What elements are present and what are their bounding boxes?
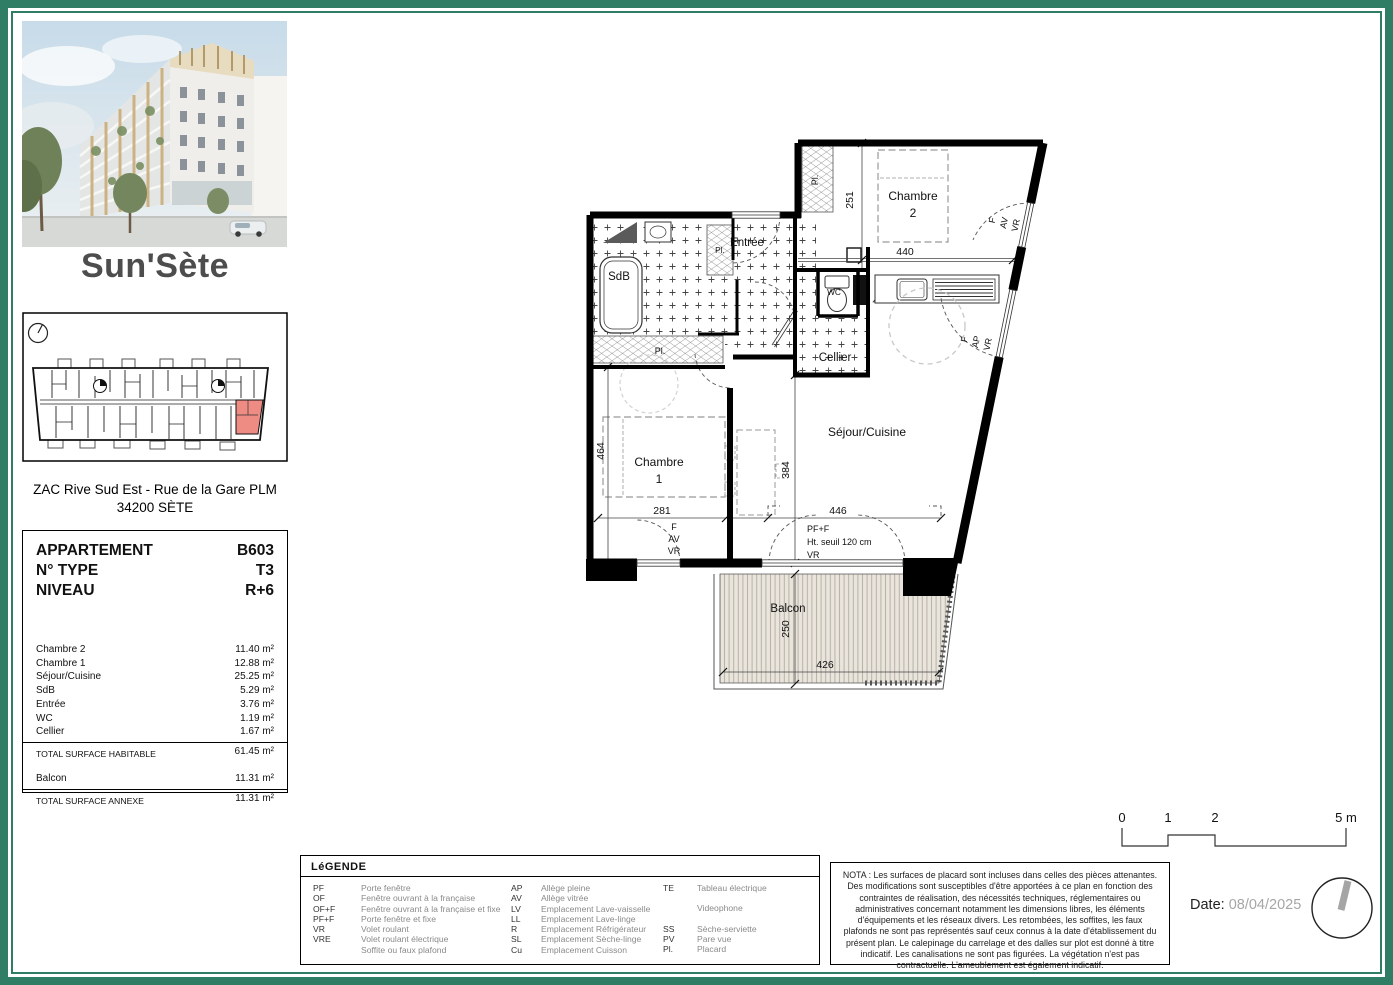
room-label-balcon: Balcon [770, 603, 805, 615]
room-area-row: Entrée3.76 m² [36, 698, 274, 712]
balcony-area-row: Balcon11.31 m² [36, 772, 274, 786]
room-area-row: Chambre 112.88 m² [36, 657, 274, 671]
north-arrow-icon [1308, 874, 1376, 942]
window-label-sejour: F AP VR [958, 332, 994, 352]
room-label-wc: WC [827, 287, 841, 297]
scale-label-5m: 5 m [1335, 810, 1357, 825]
washbasin [645, 222, 671, 242]
svg-text:F: F [987, 216, 998, 224]
svg-text:VR: VR [1010, 218, 1022, 233]
plan-sheet: Sun'Sète ZAC Rive Su [0, 0, 1393, 985]
room-area-row: Séjour/Cuisine25.25 m² [36, 670, 274, 684]
svg-text:VR: VR [668, 546, 681, 556]
dim-251: 251 [844, 191, 856, 209]
svg-text:VR: VR [982, 337, 994, 352]
address: ZAC Rive Sud Est - Rue de la Gare PLM 34… [10, 481, 300, 517]
svg-text:VR: VR [807, 550, 820, 560]
date-field: Date: 08/04/2025 [1190, 897, 1301, 913]
info-row-type: N° TYPET3 [36, 561, 274, 581]
room-area-row: Chambre 211.40 m² [36, 643, 274, 657]
window-label-chambre1: F AV VR [668, 522, 681, 556]
table-furniture [725, 430, 786, 515]
window-label-chambre2: F AV VR [986, 213, 1022, 233]
svg-text:AV: AV [998, 216, 1010, 229]
legend-column-3: TETableau électrique Videophone SSSèche-… [663, 883, 813, 954]
date-value: 08/04/2025 [1229, 897, 1302, 913]
site-building-footprint [33, 359, 268, 450]
room-label-cellier: Cellier [819, 352, 852, 364]
scale-label-1: 1 [1164, 810, 1171, 825]
photo-car [230, 221, 266, 237]
address-line2: 34200 SÈTE [10, 499, 300, 517]
room-label-sejour: Séjour/Cuisine [828, 425, 906, 439]
total-habitable-row: TOTAL SURFACE HABITABLE61.45 m² [36, 745, 274, 761]
wall-corner [903, 558, 959, 596]
room-label-sdb: SdB [608, 271, 630, 283]
scale-label-2: 2 [1211, 810, 1218, 825]
svg-text:2: 2 [910, 206, 917, 220]
bathtub [600, 257, 642, 333]
room-label-entree: Entrée [730, 237, 764, 249]
window-label-balcony-door: PF+F Ht. seuil 120 cm VR [807, 524, 872, 560]
kitchen-counter [875, 275, 999, 303]
dim-426: 426 [816, 659, 834, 671]
floor-plan: SdB Entrée Pl. Pl. Pl. WC Cellier Chambr… [575, 130, 1075, 710]
dim-464: 464 [595, 442, 607, 460]
dim-250: 250 [780, 620, 792, 638]
svg-text:AP: AP [970, 335, 982, 349]
date-label: Date: [1190, 897, 1225, 913]
svg-text:Ht. seuil 120 cm: Ht. seuil 120 cm [807, 537, 872, 547]
legend-title: LéGENDE [301, 856, 819, 877]
dim-281: 281 [653, 505, 671, 517]
room-label-chambre1: Chambre [634, 455, 684, 469]
svg-text:F: F [671, 522, 677, 532]
closet-label: Pl. [655, 346, 666, 356]
wall-step [586, 559, 637, 581]
legend-column-2: APAllège pleine AVAllège vitrée LVEmplac… [511, 883, 666, 955]
svg-text:1: 1 [656, 472, 663, 486]
room-area-row: Cellier1.67 m² [36, 725, 274, 739]
project-title: Sun'Sète [22, 247, 288, 286]
site-key-plan [22, 312, 288, 462]
scale-bar: 0 1 2 5 m [1095, 806, 1365, 851]
svg-text:F: F [959, 335, 970, 343]
room-area-row: SdB5.29 m² [36, 684, 274, 698]
svg-text:PF+F: PF+F [807, 524, 830, 534]
total-annexe-row: TOTAL SURFACE ANNEXE11.31 m² [36, 792, 274, 808]
scale-label-0: 0 [1118, 810, 1125, 825]
fridge [853, 275, 868, 305]
room-area-row: WC1.19 m² [36, 712, 274, 726]
room-label-chambre2: Chambre [888, 189, 938, 203]
svg-text:AV: AV [668, 534, 679, 544]
info-row-level: NIVEAUR+6 [36, 581, 274, 601]
apartment-info-panel: APPARTEMENTB603 N° TYPET3 NIVEAUR+6 Cham… [22, 530, 288, 793]
legend-panel: LéGENDE PFPorte fenêtre OFFenêtre ouvran… [300, 855, 820, 965]
closet-label: Pl. [810, 175, 820, 186]
building-rendering-image [22, 21, 287, 247]
dim-446: 446 [829, 505, 847, 517]
info-row-apartment: APPARTEMENTB603 [36, 541, 274, 561]
dim-440: 440 [896, 246, 914, 258]
duct [847, 248, 861, 262]
closet-label: Pl. [715, 245, 725, 255]
legend-column-1: PFPorte fenêtre OFFenêtre ouvrant à la f… [313, 883, 508, 955]
address-line1: ZAC Rive Sud Est - Rue de la Gare PLM [10, 481, 300, 499]
highlighted-unit [236, 400, 263, 434]
dim-384: 384 [780, 461, 792, 479]
nota-panel: NOTA : Les surfaces de placard sont incl… [830, 862, 1170, 965]
